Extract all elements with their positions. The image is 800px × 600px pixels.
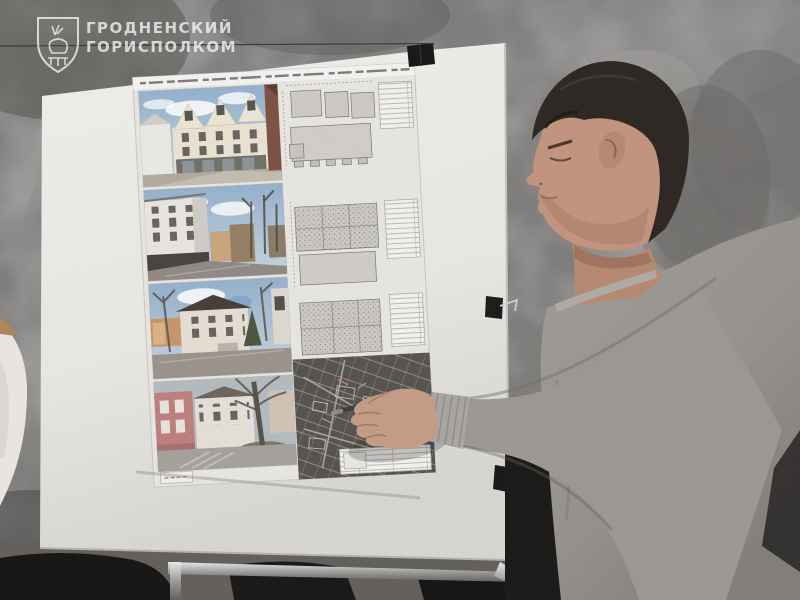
photo-grain (0, 0, 800, 600)
photo-scene: ГРОДНЕНСКИЙ ГОРИСПОЛКОМ (0, 0, 800, 600)
watermark-line1: ГРОДНЕНСКИЙ (86, 18, 233, 37)
watermark-line2: ГОРИСПОЛКОМ (86, 38, 237, 56)
